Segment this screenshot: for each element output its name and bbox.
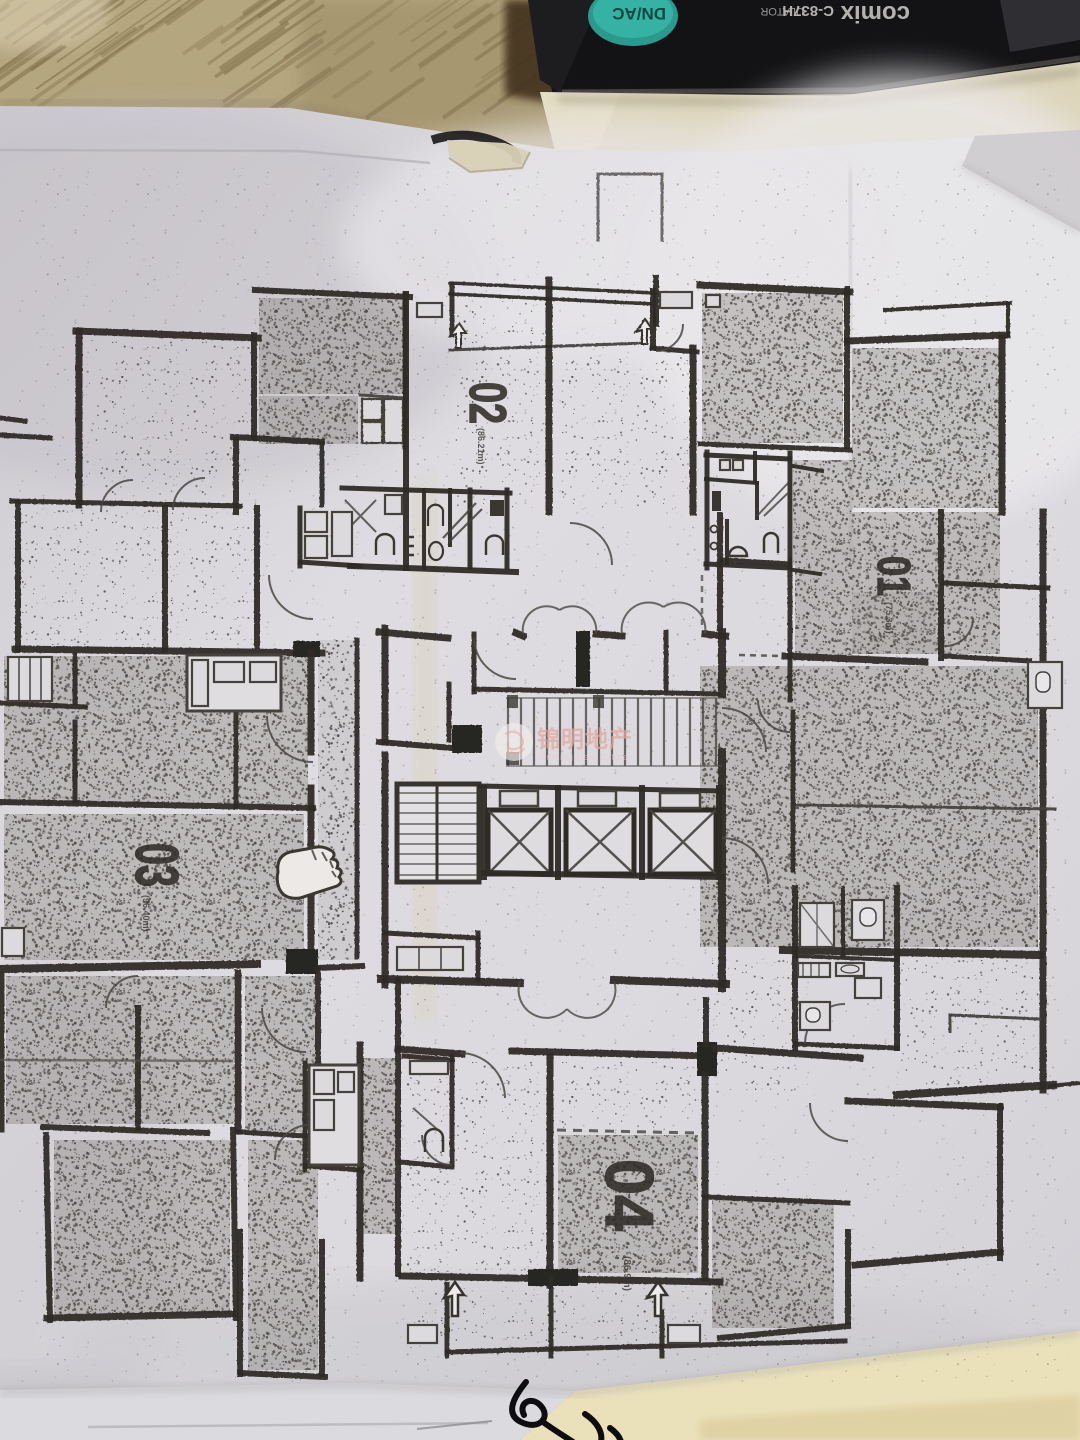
svg-text:(96.40m): (96.40m) xyxy=(141,895,151,932)
svg-text:(75.3m): (75.3m) xyxy=(884,602,894,634)
svg-text:(86.9m): (86.9m) xyxy=(621,1256,632,1291)
svg-text:(86.21m): (86.21m) xyxy=(476,428,486,465)
svg-text:03: 03 xyxy=(123,843,190,887)
svg-text:Jinming Real Estate: Jinming Real Estate xyxy=(539,752,629,762)
svg-text:锦明地产: 锦明地产 xyxy=(537,726,633,752)
svg-text:02: 02 xyxy=(458,382,516,424)
svg-text:ULATOR: ULATOR xyxy=(760,5,804,17)
svg-text:04: 04 xyxy=(591,1159,667,1231)
svg-text:DN/AC: DN/AC xyxy=(612,4,666,23)
svg-text:01: 01 xyxy=(868,556,920,596)
